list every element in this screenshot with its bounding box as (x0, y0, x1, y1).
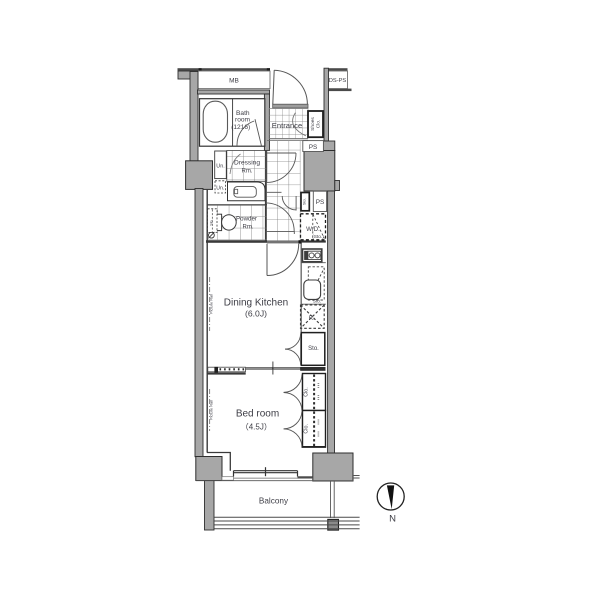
svg-text:(6.0J): (6.0J) (245, 309, 267, 319)
svg-text:N: N (389, 514, 396, 525)
svg-text:Powder: Powder (236, 216, 257, 223)
svg-text:Dining Kitchen: Dining Kitchen (224, 298, 288, 309)
svg-text:Sto.: Sto. (308, 346, 319, 352)
svg-text:PS: PS (309, 144, 318, 151)
svg-text:room: room (235, 117, 251, 124)
svg-text:R.: R. (309, 316, 315, 322)
svg-text:Rm.: Rm. (242, 169, 253, 175)
svg-text:(Sto.): (Sto.) (312, 234, 324, 240)
svg-text:Bed room: Bed room (236, 409, 279, 420)
svg-text:（4.5J）: （4.5J） (241, 423, 272, 432)
svg-text:Clo.: Clo. (304, 387, 310, 397)
svg-text:Entrance: Entrance (272, 121, 302, 130)
svg-text:Clo.: Clo. (316, 120, 322, 129)
svg-text:Sto.: Sto. (302, 198, 307, 205)
svg-text:Dressing: Dressing (234, 160, 260, 167)
svg-text:Sto.: Sto. (313, 298, 321, 303)
svg-text:MB: MB (229, 77, 239, 84)
svg-text:PS: PS (316, 199, 325, 206)
svg-text:Shoes: Shoes (310, 117, 316, 131)
svg-text:Un.: Un. (216, 186, 224, 192)
svg-text:Clo.: Clo. (304, 424, 310, 434)
svg-text:Picture Rail: Picture Rail (209, 294, 214, 314)
svg-text:DS-PS: DS-PS (329, 78, 347, 84)
svg-text:Picture Rail: Picture Rail (209, 400, 214, 420)
svg-text:Sto.: Sto. (210, 219, 214, 225)
svg-text:W/D.: W/D. (306, 226, 320, 233)
svg-text:Un.: Un. (216, 164, 224, 170)
svg-text:Balcony: Balcony (259, 497, 289, 506)
svg-text:Rm.: Rm. (243, 224, 254, 230)
